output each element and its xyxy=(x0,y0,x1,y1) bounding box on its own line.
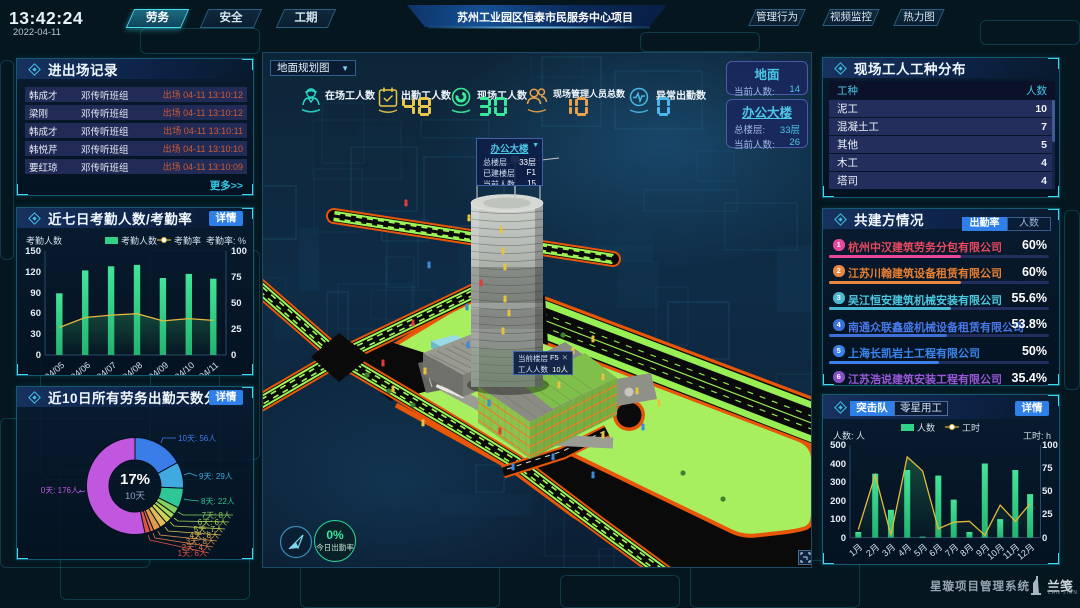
svg-text:3月: 3月 xyxy=(880,542,897,559)
svg-text:50: 50 xyxy=(231,298,242,309)
svg-text:100: 100 xyxy=(231,246,247,257)
svg-text:100: 100 xyxy=(830,514,846,525)
svg-text:考勤率: 考勤率 xyxy=(174,235,201,246)
svg-text:8月: 8月 xyxy=(958,542,975,559)
svg-text:04/05: 04/05 xyxy=(43,360,67,376)
svg-text:0天: 176人: 0天: 176人 xyxy=(41,486,79,495)
svg-text:100: 100 xyxy=(1042,440,1058,451)
svg-text:500: 500 xyxy=(830,440,846,451)
svg-text:90: 90 xyxy=(30,288,41,299)
svg-text:17%: 17% xyxy=(120,471,150,488)
svg-text:30: 30 xyxy=(30,329,41,340)
svg-text:工时: 工时 xyxy=(962,422,980,433)
svg-text:1天: 6人: 1天: 6人 xyxy=(178,549,207,558)
svg-text:0: 0 xyxy=(231,350,236,361)
svg-text:04/08: 04/08 xyxy=(121,360,145,376)
svg-text:0: 0 xyxy=(1042,533,1047,544)
svg-text:考勤人数: 考勤人数 xyxy=(121,235,157,246)
svg-text:150: 150 xyxy=(25,246,41,257)
svg-text:04/09: 04/09 xyxy=(147,360,171,376)
svg-text:200: 200 xyxy=(830,496,846,507)
svg-text:4月: 4月 xyxy=(896,542,913,559)
svg-text:04/10: 04/10 xyxy=(173,360,197,376)
svg-text:25: 25 xyxy=(231,324,242,335)
svg-text:75: 75 xyxy=(231,272,242,283)
svg-text:考勤率: %: 考勤率: % xyxy=(206,235,246,246)
svg-text:10天: 10天 xyxy=(125,491,146,502)
svg-text:75: 75 xyxy=(1042,463,1053,474)
svg-text:10天: 56人: 10天: 56人 xyxy=(178,434,216,443)
svg-text:04/11: 04/11 xyxy=(197,360,220,376)
svg-text:0: 0 xyxy=(36,350,41,361)
svg-text:人数: 人数 xyxy=(917,422,935,433)
svg-text:25: 25 xyxy=(1042,509,1053,520)
svg-text:9天: 29人: 9天: 29人 xyxy=(199,472,233,481)
svg-text:60: 60 xyxy=(30,308,41,319)
svg-text:0: 0 xyxy=(841,533,846,544)
svg-text:04/07: 04/07 xyxy=(95,360,119,376)
svg-text:8天: 22人: 8天: 22人 xyxy=(201,497,235,506)
svg-text:300: 300 xyxy=(830,477,846,488)
svg-text:12月: 12月 xyxy=(1015,542,1036,562)
svg-text:1月: 1月 xyxy=(847,542,864,559)
svg-text:50: 50 xyxy=(1042,486,1053,497)
svg-text:120: 120 xyxy=(25,267,41,278)
svg-text:400: 400 xyxy=(830,459,846,470)
svg-text:6月: 6月 xyxy=(927,542,944,559)
svg-text:04/06: 04/06 xyxy=(69,360,93,376)
svg-text:考勤人数: 考勤人数 xyxy=(26,235,62,246)
svg-text:2月: 2月 xyxy=(864,542,881,559)
